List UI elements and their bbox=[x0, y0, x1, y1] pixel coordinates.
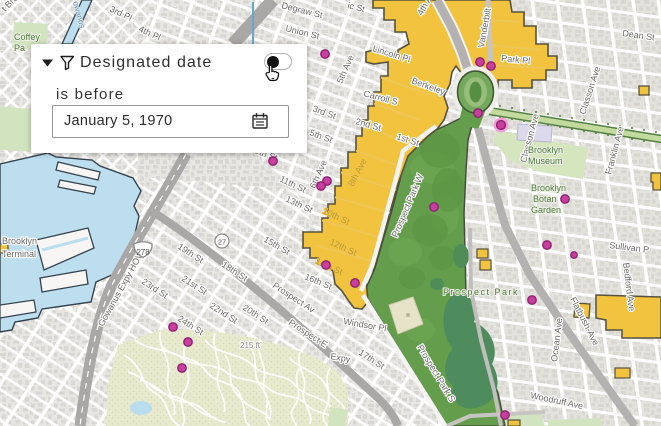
svg-text:278: 278 bbox=[136, 248, 150, 257]
svg-text:Brooklyn: Brooklyn bbox=[531, 183, 566, 193]
svg-text:Prospect Park: Prospect Park bbox=[443, 287, 519, 297]
svg-text:Museum: Museum bbox=[528, 156, 563, 166]
svg-text:215 ft˙: 215 ft˙ bbox=[240, 341, 263, 350]
svg-text:Brooklyn: Brooklyn bbox=[528, 145, 563, 155]
svg-text:Coffey: Coffey bbox=[14, 32, 40, 42]
svg-text:Botan: Botan bbox=[533, 194, 557, 204]
svg-text:Brooklyn: Brooklyn bbox=[2, 236, 37, 246]
svg-text:27: 27 bbox=[218, 238, 226, 247]
svg-text:Pa: Pa bbox=[14, 43, 25, 53]
svg-text:Garden: Garden bbox=[531, 205, 561, 215]
svg-text:Terminal: Terminal bbox=[2, 249, 36, 259]
